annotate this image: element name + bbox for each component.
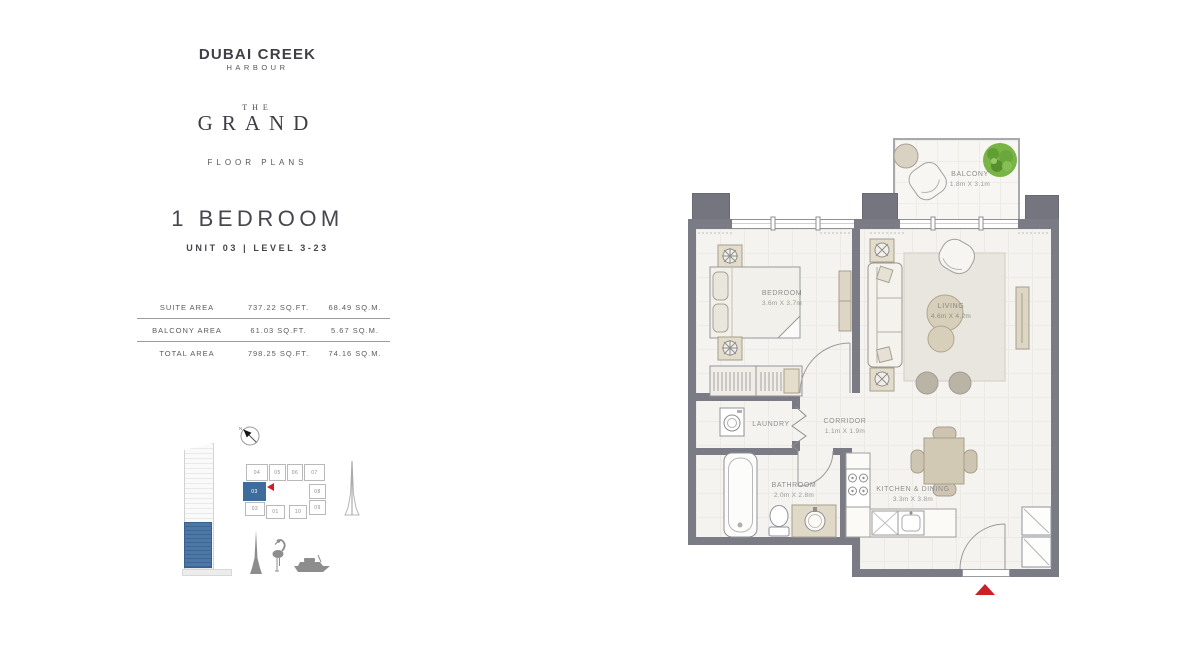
keyplan-unit-08: 08 [309, 484, 326, 499]
area-table: SUITE AREA 737.22 SQ.FT. 68.49 SQ.M. BAL… [137, 296, 390, 364]
lamp-table [870, 239, 894, 262]
kitchen-dims: 3.3m X 3.8m [853, 495, 973, 505]
corridor-label: CORRIDOR 1.1m X 1.9m [805, 416, 885, 438]
window-posts [771, 217, 983, 230]
lamp-table [870, 368, 894, 391]
entry-arrow-icon [975, 584, 995, 595]
bathtub [724, 453, 757, 537]
brand-logo-name: DUBAI CREEK [170, 46, 345, 63]
section-label: FLOOR PLANS [170, 158, 345, 167]
unit-subtitle: UNIT 03 | LEVEL 3-23 [150, 243, 365, 253]
coffee-table [928, 326, 954, 352]
kitchen-sink [898, 511, 924, 535]
nightstand [718, 245, 742, 268]
living-dims: 4.6m X 4.2m [911, 312, 991, 322]
bedroom-label: BEDROOM 3.6m X 3.7m [742, 288, 822, 310]
keyplan-unit-03-highlighted: 03 [243, 482, 266, 501]
living-label: LIVING 4.6m X 4.2m [911, 301, 991, 323]
entry-closet [1022, 507, 1051, 567]
entry-door [960, 524, 1005, 569]
area-metric: 74.16 SQ.M. [320, 349, 390, 358]
tv-cabinet [1016, 287, 1029, 349]
area-imperial: 61.03 SQ.FT. [237, 326, 320, 335]
keyplan-unit-04: 04 [246, 464, 268, 481]
bathroom-name: BATHROOM [772, 482, 817, 489]
area-metric: 68.49 SQ.M. [320, 303, 390, 312]
brand-logo-sub: HARBOUR [170, 63, 345, 72]
plan-furniture-layer [680, 135, 1065, 605]
bedroom-dresser [839, 271, 851, 331]
tower-highlighted-levels [184, 522, 212, 568]
area-label: TOTAL AREA [137, 349, 237, 358]
laundry-name: LAUNDRY [752, 421, 790, 428]
keyplan-unit-06: 06 [287, 464, 303, 481]
table-row: BALCONY AREA 61.03 SQ.FT. 5.67 SQ.M. [137, 319, 390, 342]
toilet [769, 506, 789, 537]
sofa [868, 263, 902, 367]
area-imperial: 737.22 SQ.FT. [237, 303, 320, 312]
balcony-name: BALCONY [951, 171, 989, 178]
burj-khalifa-icon [250, 530, 262, 574]
corridor-dims: 1.1m X 1.9m [805, 427, 885, 437]
bathroom-vanity [792, 505, 836, 537]
keyplan-unit-01: 01 [266, 505, 285, 519]
unit-type-title: 1 BEDROOM [150, 206, 365, 232]
bathroom-label: BATHROOM 2.0m X 2.8m [754, 480, 834, 502]
kitchen-name: KITCHEN & DINING [876, 486, 949, 493]
area-metric: 5.67 SQ.M. [320, 326, 390, 335]
keyplan-unit-07: 07 [304, 464, 325, 481]
living-name: LIVING [938, 303, 965, 310]
area-imperial: 798.25 SQ.FT. [237, 349, 320, 358]
floor-plan: BALCONY 1.8m X 3.1m BEDROOM 3.6m X 3.7m … [680, 135, 1065, 605]
keyplan-unit-09: 09 [309, 500, 326, 515]
key-plan: 04 05 06 07 03 08 02 01 10 09 [238, 458, 338, 524]
corridor-name: CORRIDOR [824, 418, 867, 425]
ottoman [949, 372, 971, 394]
balcony-table [894, 144, 918, 168]
bedroom-name: BEDROOM [762, 290, 802, 297]
creek-tower-icon [343, 460, 361, 518]
wardrobe [710, 366, 802, 396]
area-label: SUITE AREA [137, 303, 237, 312]
table-row: TOTAL AREA 798.25 SQ.FT. 74.16 SQ.M. [137, 342, 390, 364]
compass-icon: N [238, 424, 262, 448]
floor-plan-page: DUBAI CREEK HARBOUR THE GRAND FLOOR PLAN… [0, 0, 1200, 650]
balcony-label: BALCONY 1.8m X 3.1m [925, 169, 1015, 191]
balcony-dims: 1.8m X 3.1m [925, 180, 1015, 190]
nightstand [718, 337, 742, 360]
project-logo-name: GRAND [170, 111, 345, 136]
area-label: BALCONY AREA [137, 326, 237, 335]
flamingo-icon [273, 539, 285, 571]
bathroom-dims: 2.0m X 2.8m [754, 491, 834, 501]
bedroom-door [800, 343, 850, 393]
tower-base [182, 569, 232, 576]
table-row: SUITE AREA 737.22 SQ.FT. 68.49 SQ.M. [137, 296, 390, 319]
yacht-icon [294, 555, 330, 572]
compass-north-label: N [239, 426, 242, 431]
keyplan-unit-arrow-icon [267, 483, 274, 491]
keyplan-unit-05: 05 [269, 464, 286, 481]
bedroom-dims: 3.6m X 3.7m [742, 299, 822, 309]
keyplan-unit-02: 02 [245, 502, 265, 516]
ottoman [916, 372, 938, 394]
laundry-label: LAUNDRY [741, 419, 801, 430]
skyline-icons [248, 528, 358, 578]
keyplan-unit-10: 10 [289, 505, 307, 519]
kitchen-label: KITCHEN & DINING 3.3m X 3.8m [853, 484, 973, 506]
dishwasher [872, 511, 898, 535]
building-tower-graphic [182, 443, 234, 581]
